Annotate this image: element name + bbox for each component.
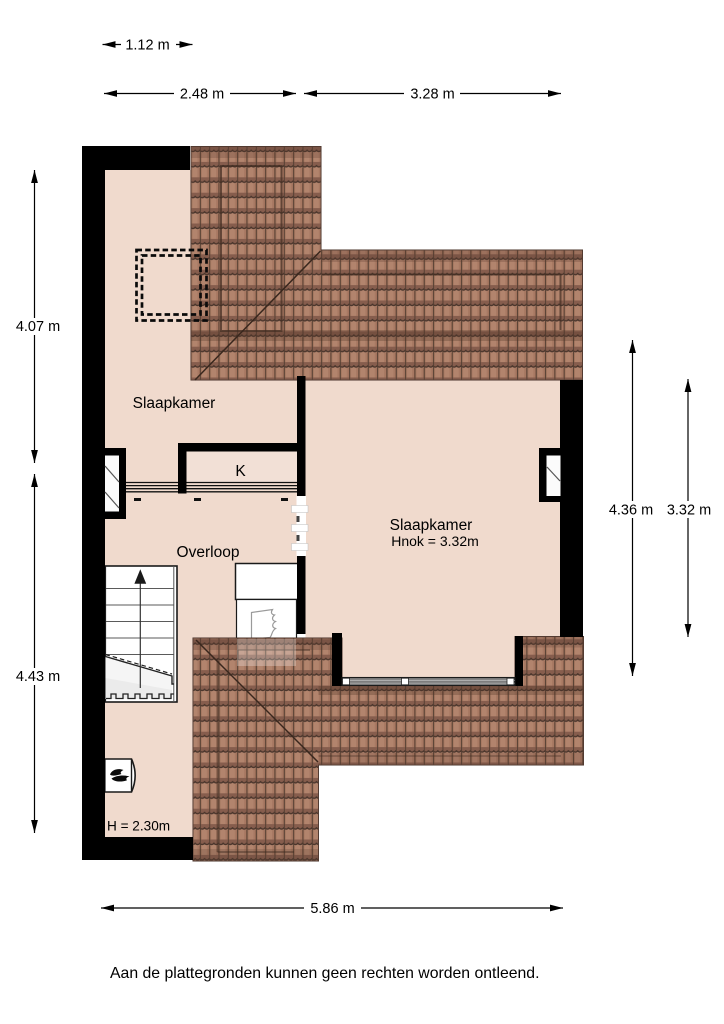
svg-text:Overloop: Overloop: [177, 544, 240, 561]
svg-text:1.12 m: 1.12 m: [125, 38, 169, 54]
svg-text:5.86 m: 5.86 m: [310, 901, 354, 917]
svg-text:K: K: [235, 463, 246, 480]
svg-text:2.48 m: 2.48 m: [180, 87, 224, 103]
svg-text:Aan de plattegronden kunnen ge: Aan de plattegronden kunnen geen rechten…: [110, 965, 540, 982]
svg-text:3.32 m: 3.32 m: [667, 503, 711, 519]
svg-text:4.36 m: 4.36 m: [609, 503, 653, 519]
svg-text:Hnok = 3.32m: Hnok = 3.32m: [391, 533, 479, 549]
svg-text:Slaapkamer: Slaapkamer: [133, 395, 216, 412]
svg-text:3.28 m: 3.28 m: [410, 87, 454, 103]
svg-text:H = 2.30m: H = 2.30m: [107, 819, 170, 834]
svg-text:4.43 m: 4.43 m: [16, 669, 60, 685]
svg-text:4.07 m: 4.07 m: [16, 319, 60, 335]
svg-text:Slaapkamer: Slaapkamer: [390, 517, 473, 534]
